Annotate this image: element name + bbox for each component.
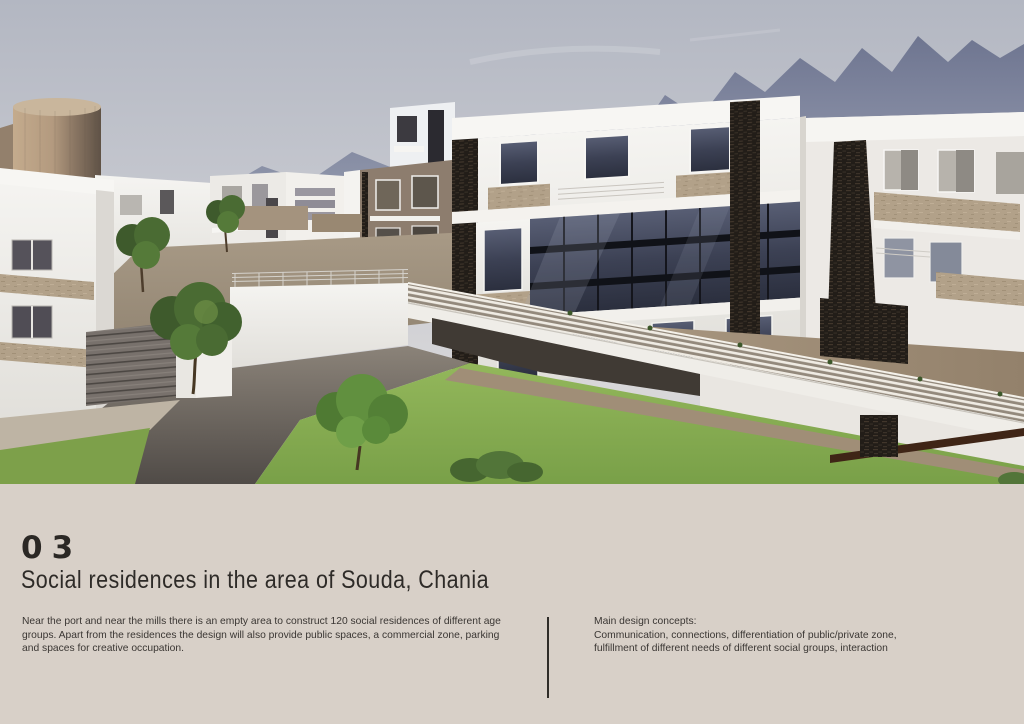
mid-building-a-door xyxy=(160,190,174,214)
tan-garden-wall2 xyxy=(312,214,362,232)
main-stone-tower xyxy=(730,100,760,368)
architectural-render xyxy=(0,0,1024,484)
background-balcony-slab xyxy=(394,146,424,152)
right-window4 xyxy=(884,238,914,278)
upper-balcony-slab1 xyxy=(488,184,550,210)
mid-building-d-window2 xyxy=(412,176,438,208)
right-window3 xyxy=(996,152,1024,194)
cylinder-top xyxy=(13,98,101,116)
project-description: Near the port and near the mills there i… xyxy=(22,615,546,656)
vertical-divider xyxy=(547,617,549,698)
upper-window2 xyxy=(585,135,629,180)
upper-window3 xyxy=(690,126,730,173)
stone-patch-lower-wall xyxy=(860,415,898,457)
right-window1-pane xyxy=(901,150,918,190)
portfolio-page: 03 Social residences in the area of Soud… xyxy=(0,0,1024,724)
mid-pier-window xyxy=(484,228,522,292)
tan-garden-wall1 xyxy=(238,206,308,230)
mid-building-b-window2 xyxy=(252,184,268,206)
mid-building-d-slab xyxy=(370,216,440,221)
mid-building-d-window1 xyxy=(376,180,400,210)
section-number: 03 xyxy=(21,533,82,564)
right-window2-pane xyxy=(956,150,974,192)
background-window xyxy=(397,116,417,142)
info-panel xyxy=(0,484,1024,724)
design-concepts: Main design concepts: Communication, con… xyxy=(594,615,934,656)
upper-window1 xyxy=(500,140,538,184)
project-title: Social residences in the area of Souda, … xyxy=(21,566,489,595)
mid-building-a-window xyxy=(120,195,142,215)
mid-building-c-ribbon1 xyxy=(295,188,335,196)
render-canvas xyxy=(0,0,1024,484)
stone-cube-base xyxy=(820,298,908,364)
